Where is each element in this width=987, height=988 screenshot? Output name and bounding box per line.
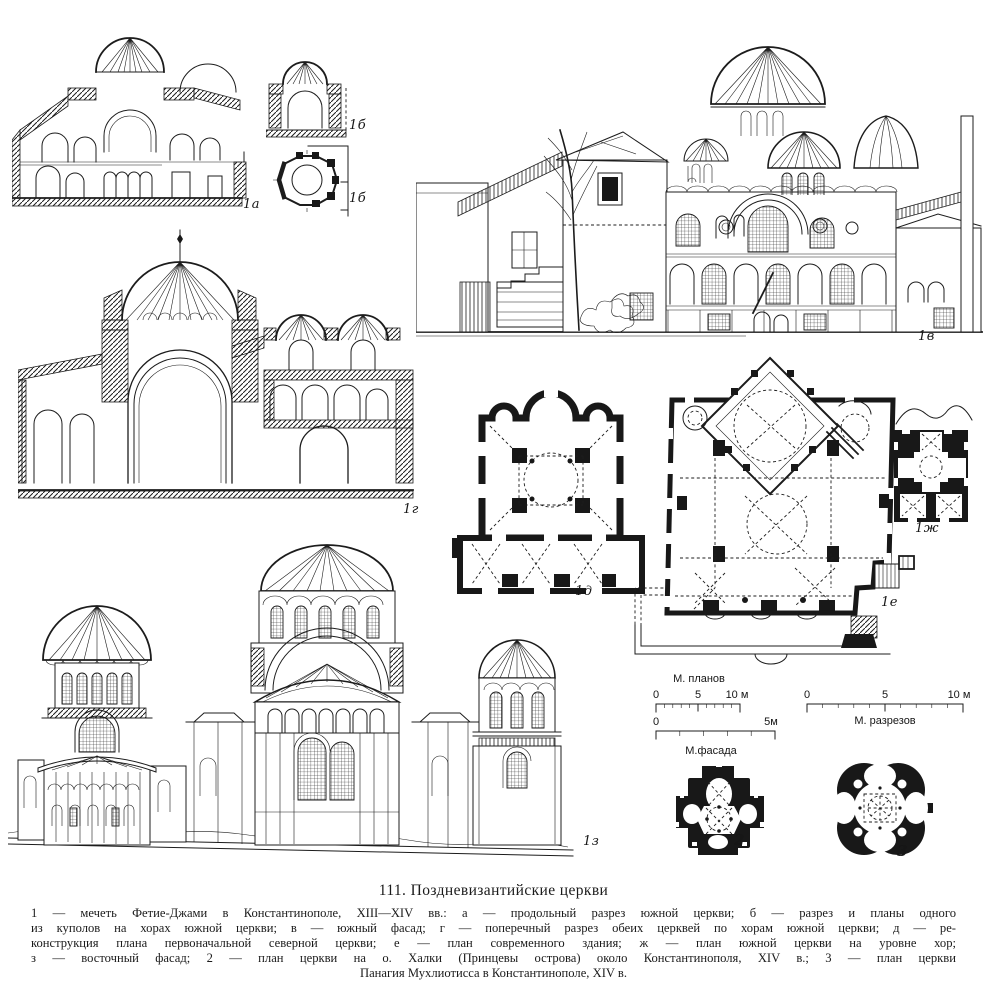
label-fig-1b-section: 1б <box>349 118 366 133</box>
scalebar-plans-title: М. планов <box>673 673 725 685</box>
figure-1g-transverse-section <box>18 228 420 518</box>
label-fig-1d: 1д <box>575 584 593 599</box>
scalebar-plans-0: 0 <box>653 689 659 701</box>
caption-line-3: конструкция плана первоначальной северно… <box>31 936 956 951</box>
figure-3-panagia-plan <box>822 756 934 862</box>
label-fig-3: 3 <box>897 842 908 860</box>
figure-1v-south-facade <box>416 20 987 350</box>
houses-1v <box>416 132 668 332</box>
figure-1zh-gallery-plan <box>886 390 980 532</box>
right-volume-1z <box>473 640 561 845</box>
caption-line-4: з — восточный фасад; 2 — план церкви на … <box>31 951 956 966</box>
caption-line-5: Панагия Мухлиотисса в Константинополе, X… <box>31 966 956 981</box>
figure-1b-dome-section <box>266 52 348 144</box>
label-fig-1g: 1г <box>403 502 419 517</box>
section-cut-line-1b <box>300 142 356 218</box>
cornice-scallops-1v <box>666 186 897 192</box>
scalebar-sections-10: 10 м <box>948 689 971 701</box>
left-flank-dome-1v <box>684 139 728 183</box>
main-dome-1g <box>104 262 256 320</box>
scalebar-plans-10: 10 м <box>726 689 749 701</box>
lower-arcade-1a <box>36 166 222 198</box>
center-volume-1z <box>251 545 403 845</box>
label-fig-1zh: 1ж <box>915 521 939 536</box>
caption-line-1: 1 — мечеть Фетие-Джами в Константинополе… <box>31 906 956 921</box>
label-fig-1b-plan: 1б <box>349 191 366 206</box>
caption-title: 111. Поздневизантийские церкви <box>0 882 987 900</box>
book-page: М. планов 0 5 10 м 0 5м М.фасада 0 5 10 … <box>0 0 987 988</box>
scalebar-facade-ruler <box>656 731 775 739</box>
ground-hatch-1a <box>12 198 242 206</box>
label-fig-1v: 1в <box>918 329 935 344</box>
upper-arches-1a <box>42 110 220 162</box>
label-fig-1z: 1з <box>583 834 599 849</box>
right-flank-dome-1v <box>768 132 840 195</box>
main-dome-1v <box>711 47 825 136</box>
figure-1z-east-facade <box>8 520 620 862</box>
scale-bars: М. планов 0 5 10 м 0 5м М.фасада 0 5 10 … <box>645 666 980 766</box>
spire-1g <box>177 230 183 262</box>
caption-line-2: из куполов на хорах южной церкви; в — юж… <box>31 921 956 936</box>
scalebar-plans-5: 5 <box>695 689 701 701</box>
church-facade-1v <box>666 47 918 332</box>
figure-1a-longitudinal-section <box>12 32 252 214</box>
ground-1v <box>416 332 982 336</box>
scalebar-sections-ruler <box>807 704 963 712</box>
central-dome-1a <box>96 38 164 72</box>
label-fig-1e: 1е <box>881 595 898 610</box>
inner-arch-1b <box>288 91 322 128</box>
label-fig-1a: 1а <box>243 197 260 212</box>
scalebar-facade-0: 0 <box>653 716 659 728</box>
scalebar-facade-title: М.фасада <box>685 745 737 757</box>
label-fig-2: 2 <box>734 831 745 849</box>
central-window-1v <box>748 206 788 252</box>
scalebar-sections-0: 0 <box>804 689 810 701</box>
apse-sketch-1zh <box>896 406 972 424</box>
small-dome-1b <box>283 62 327 84</box>
scalebar-sections-title: М. разрезов <box>854 715 915 727</box>
left-wing-1g <box>18 354 102 483</box>
scalebar-facade-5: 5м <box>764 716 778 728</box>
figure-2-halki-church-plan <box>674 762 766 856</box>
scalebar-plans-ruler <box>656 704 740 712</box>
right-wing-1g <box>232 315 413 483</box>
far-right-dome-1v <box>854 116 918 168</box>
scalebar-sections-5: 5 <box>882 689 888 701</box>
left-volume-1z <box>18 606 186 845</box>
